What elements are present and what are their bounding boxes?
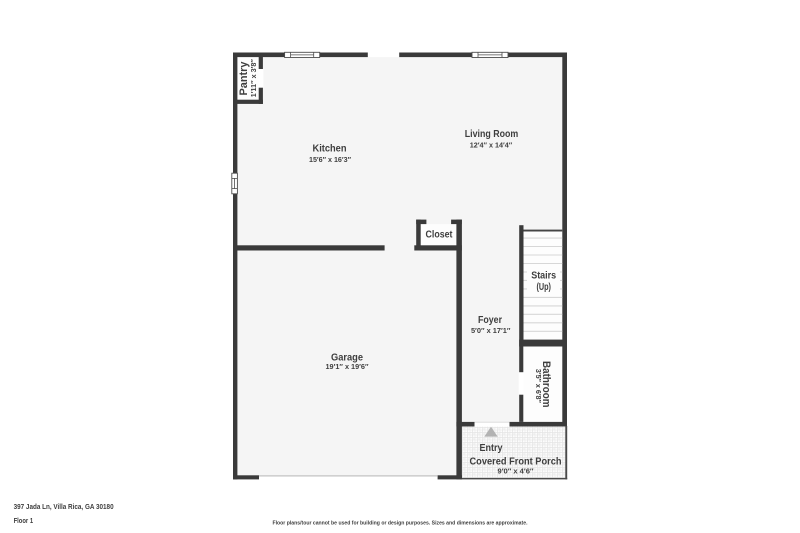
svg-text:Floor plans/tour cannot be use: Floor plans/tour cannot be used for buil…	[273, 521, 528, 527]
svg-text:9′0″ x 4′6″: 9′0″ x 4′6″	[498, 466, 534, 475]
svg-text:19′1″ x 19′6″: 19′1″ x 19′6″	[326, 362, 369, 371]
svg-text:5′0″ x 17′1″: 5′0″ x 17′1″	[471, 326, 511, 335]
svg-text:397 Jada Ln, Villa Rica, GA 30: 397 Jada Ln, Villa Rica, GA 30180	[14, 502, 114, 511]
svg-text:Entry: Entry	[480, 443, 503, 454]
svg-text:3′5″ x 6′8″: 3′5″ x 6′8″	[534, 369, 543, 403]
svg-text:Kitchen: Kitchen	[313, 144, 347, 155]
svg-text:1′11″ x 3′8″: 1′11″ x 3′8″	[249, 59, 258, 97]
svg-text:Stairs: Stairs	[531, 271, 556, 282]
svg-text:12′4″ x 14′4″: 12′4″ x 14′4″	[470, 140, 513, 149]
svg-text:Living Room: Living Room	[465, 129, 519, 140]
svg-text:(Up): (Up)	[536, 282, 551, 293]
svg-text:Closet: Closet	[426, 230, 454, 241]
svg-text:Floor 1: Floor 1	[14, 516, 34, 525]
svg-text:15′6″ x 16′3″: 15′6″ x 16′3″	[309, 155, 351, 164]
svg-text:Foyer: Foyer	[478, 315, 502, 326]
